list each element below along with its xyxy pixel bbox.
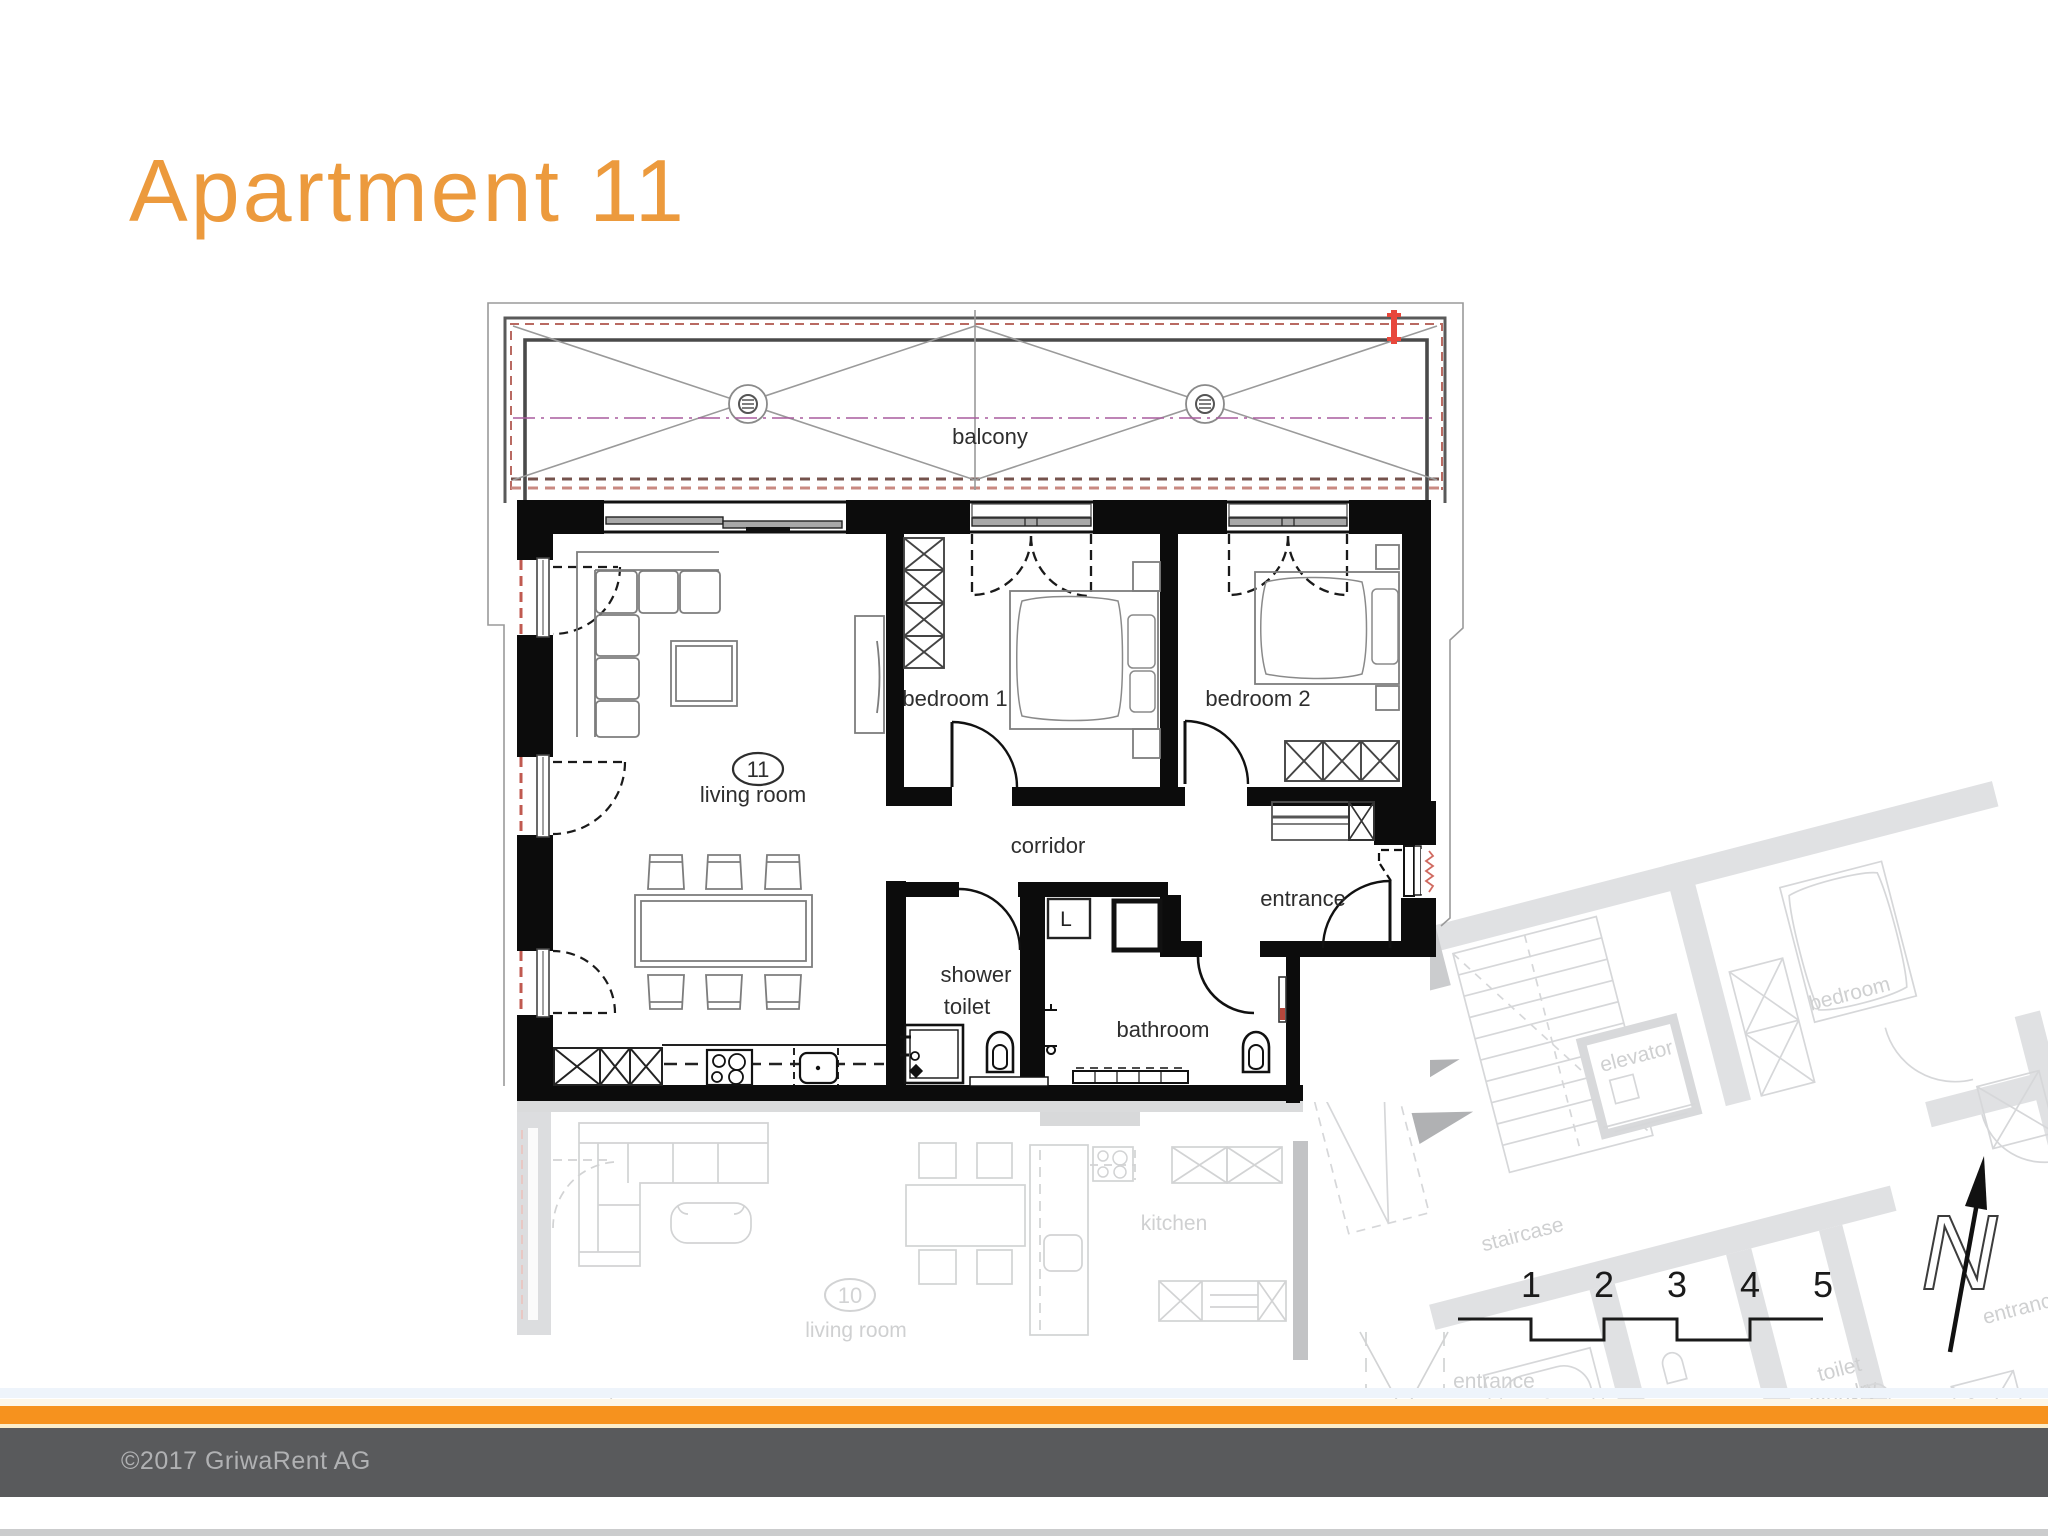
- svg-text:toilet: toilet: [944, 994, 990, 1019]
- svg-text:11: 11: [747, 757, 770, 782]
- svg-text:living room: living room: [805, 1319, 907, 1342]
- svg-text:corridor: corridor: [1011, 833, 1086, 858]
- svg-text:©2017 GriwaRent AG: ©2017 GriwaRent AG: [121, 1447, 371, 1475]
- svg-text:5: 5: [1813, 1264, 1833, 1305]
- svg-text:Apartment 11: Apartment 11: [129, 141, 687, 240]
- svg-text:2: 2: [1594, 1264, 1614, 1305]
- svg-text:bedroom 2: bedroom 2: [1205, 686, 1310, 711]
- svg-text:1: 1: [1521, 1264, 1541, 1305]
- svg-text:kitchen: kitchen: [1141, 1212, 1208, 1235]
- svg-text:bathroom: bathroom: [1117, 1017, 1210, 1042]
- svg-text:10: 10: [838, 1283, 862, 1308]
- svg-text:entrance: entrance: [1260, 886, 1346, 911]
- svg-text:living room: living room: [700, 782, 806, 807]
- svg-text:shower: shower: [941, 962, 1012, 987]
- svg-text:4: 4: [1740, 1264, 1760, 1305]
- svg-text:balcony: balcony: [952, 424, 1028, 449]
- svg-text:L: L: [1060, 908, 1072, 931]
- svg-text:3: 3: [1667, 1264, 1687, 1305]
- svg-text:bedroom 1: bedroom 1: [902, 686, 1007, 711]
